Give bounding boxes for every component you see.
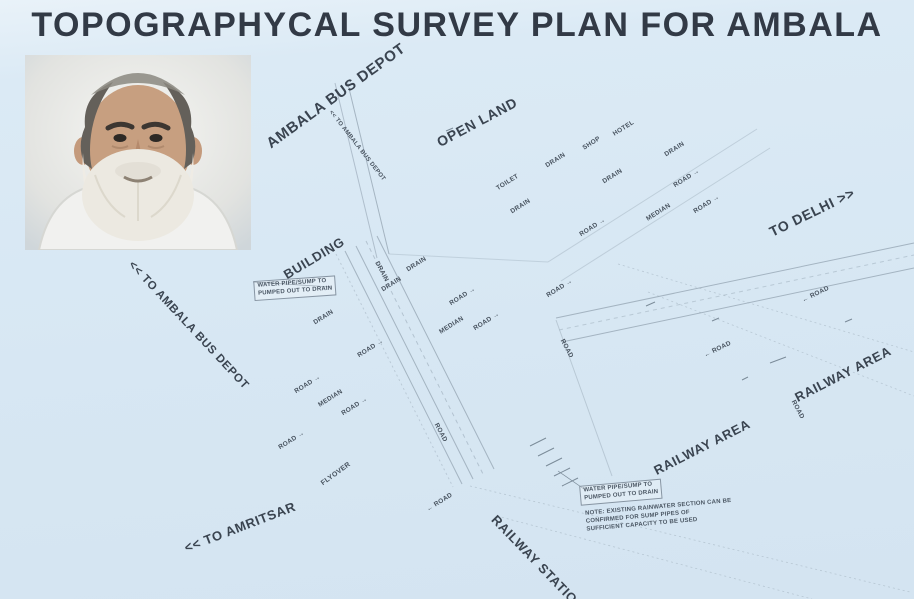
survey-plan-page: TOPOGRAPHYCAL SURVEY PLAN FOR AMBALA	[0, 0, 914, 599]
